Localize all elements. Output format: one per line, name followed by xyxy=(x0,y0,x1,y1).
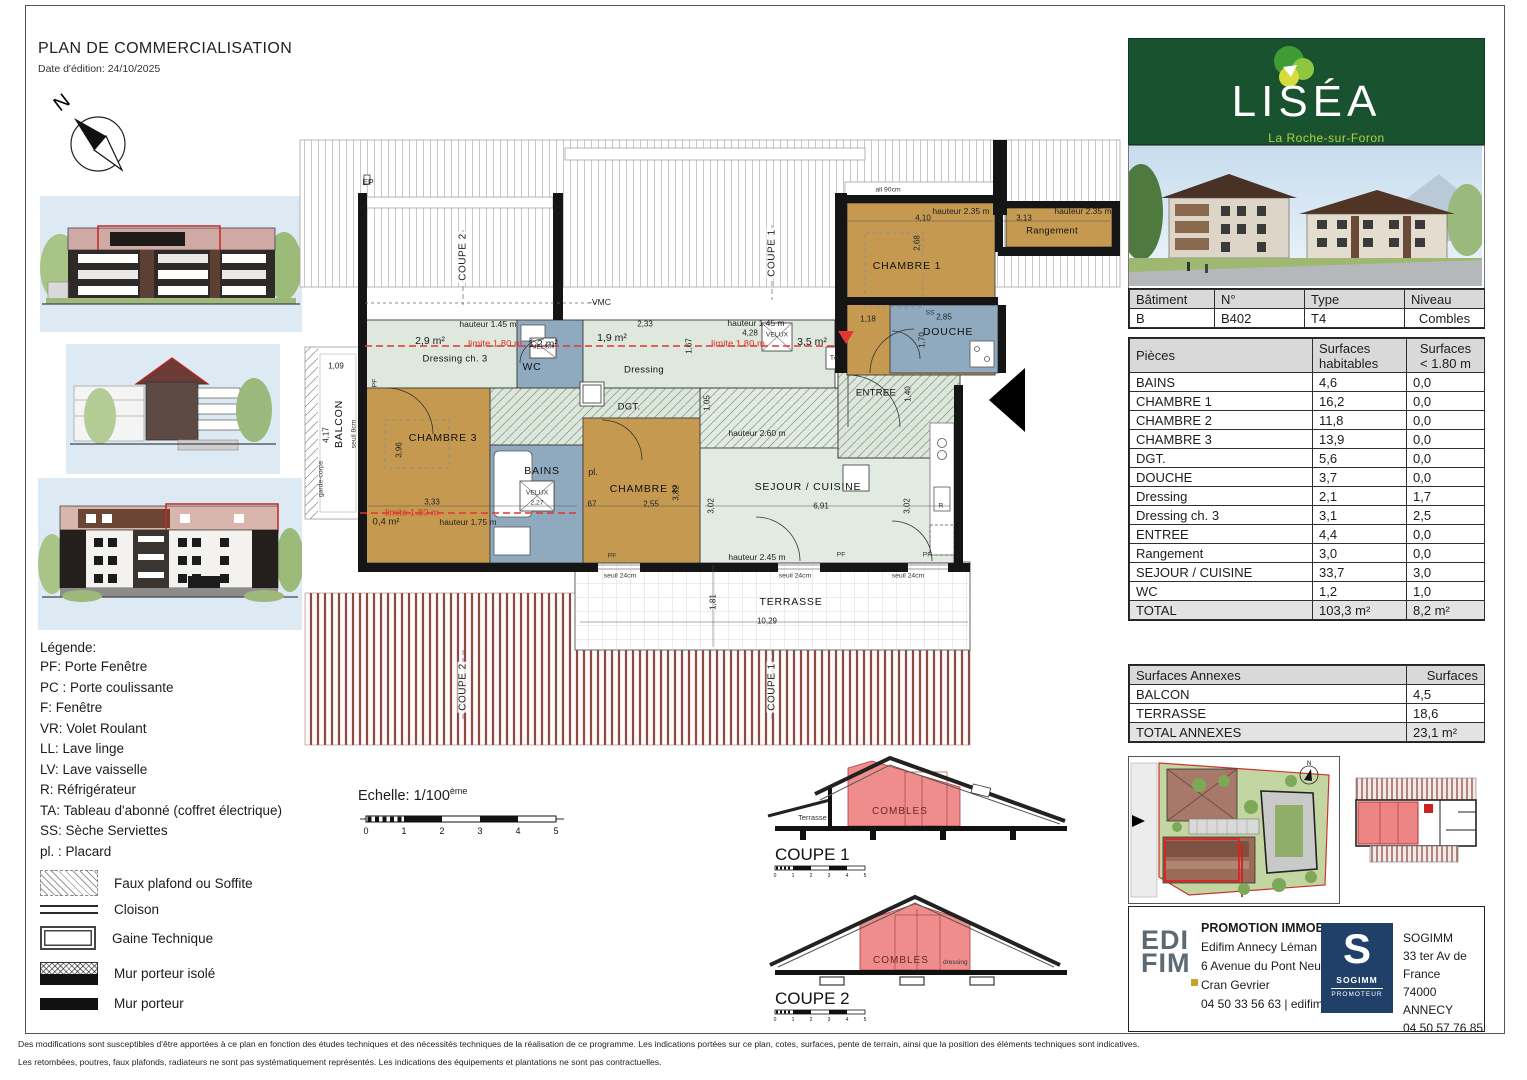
table-row: Dressing ch. 33,12,5 xyxy=(1130,506,1485,525)
room-dressing-corridor xyxy=(583,320,835,388)
annex-balcon-value: 4,5 xyxy=(1407,685,1485,704)
value-type: T4 xyxy=(1305,309,1405,328)
edifim-logo: EDI FIM xyxy=(1141,929,1191,975)
sogimm-logo: S SOGIMM PROMOTEUR xyxy=(1321,923,1393,1013)
legend-item: pl. : Placard xyxy=(40,842,340,863)
elevation-2 xyxy=(66,344,280,474)
table-header-row: Surfaces Annexes Surfaces xyxy=(1130,666,1485,685)
table-cell: 13,9 xyxy=(1313,430,1407,449)
north-letter: N xyxy=(52,90,74,116)
table-cell: BAINS xyxy=(1130,373,1313,392)
header-surfaces-basses: Surfaces< 1.80 m xyxy=(1407,339,1485,373)
table-cell: 3,0 xyxy=(1407,563,1485,582)
annex-surface-table: Surfaces Annexes Surfaces BALCON 4,5 TER… xyxy=(1128,664,1485,743)
gaine-box xyxy=(843,465,869,491)
header-surfaces: Surfaces xyxy=(1407,666,1485,685)
legend-item: LV: Lave vaisselle xyxy=(40,760,340,781)
coupe1-combles-label: COMBLES xyxy=(872,806,928,817)
mur-porteur-swatch-icon xyxy=(40,998,98,1010)
value-batiment: B xyxy=(1130,309,1215,328)
table-row: DOUCHE3,70,0 xyxy=(1130,468,1485,487)
coupe-2-section: COMBLES dressing COUPE 2 012 345 xyxy=(760,885,1090,1025)
table-cell: 0,0 xyxy=(1407,430,1485,449)
sogimm-line: 33 ter Av de France xyxy=(1403,947,1484,983)
coupe1-title: COUPE 1 xyxy=(775,845,850,864)
svg-text:2: 2 xyxy=(810,873,813,879)
total-label: TOTAL xyxy=(1130,601,1313,620)
svg-text:4: 4 xyxy=(846,1017,849,1023)
total-basse: 8,2 m² xyxy=(1407,601,1485,620)
symbol-label: Faux plafond ou Soffite xyxy=(114,876,253,891)
edifim-logo-bottom: FIM xyxy=(1141,952,1191,975)
scale-sup: ème xyxy=(450,786,468,796)
key-plan-image xyxy=(1350,772,1485,872)
room-chambre-2 xyxy=(583,418,700,563)
table-cell: 0,0 xyxy=(1407,373,1485,392)
svg-text:4: 4 xyxy=(515,826,520,836)
table-cell: CHAMBRE 1 xyxy=(1130,392,1313,411)
table-row: CHAMBRE 211,80,0 xyxy=(1130,411,1485,430)
svg-text:0: 0 xyxy=(774,1017,777,1023)
key-plan-illustration xyxy=(1350,772,1485,872)
table-row: B B402 T4 Combles xyxy=(1130,309,1485,328)
table-cell: Dressing xyxy=(1130,487,1313,506)
entrance-arrow-icon xyxy=(989,368,1025,432)
legend-symbol-mur-isole: Mur porteur isolé xyxy=(40,962,215,985)
coupe2-dressing-label: dressing xyxy=(943,959,968,966)
table-row: CHAMBRE 116,20,0 xyxy=(1130,392,1485,411)
rooms-surface-table: Pièces Surfaceshabitables Surfaces< 1.80… xyxy=(1128,337,1485,621)
brand-name: LISÉA xyxy=(1129,77,1484,127)
symbol-label: Mur porteur xyxy=(114,996,184,1011)
disclaimer-line: Les retombées, poutres, faux plafonds, r… xyxy=(18,1053,1513,1071)
table-row: BALCON 4,5 xyxy=(1130,685,1485,704)
room-rangement xyxy=(1006,208,1112,247)
header-pieces: Pièces xyxy=(1130,339,1313,373)
balcony xyxy=(305,347,361,519)
room-chambre-3 xyxy=(365,388,490,563)
total-annexes-value: 23,1 m² xyxy=(1407,723,1485,742)
legend-symbol-mur-porteur: Mur porteur xyxy=(40,996,184,1011)
table-row: TERRASSE 18,6 xyxy=(1130,704,1485,723)
coupe-1-section: Terrasse COMBLES COUPE 1 012 345 xyxy=(760,748,1090,883)
elevation-3 xyxy=(38,478,302,630)
table-cell: Rangement xyxy=(1130,544,1313,563)
svg-text:2: 2 xyxy=(810,1017,813,1023)
svg-text:0: 0 xyxy=(774,873,777,879)
table-row: SEJOUR / CUISINE33,73,0 xyxy=(1130,563,1485,582)
svg-text:3: 3 xyxy=(477,826,482,836)
table-header-row: Pièces Surfaceshabitables Surfaces< 1.80… xyxy=(1130,339,1485,373)
table-cell: 1,7 xyxy=(1407,487,1485,506)
legend-item: SS: Sèche Serviettes xyxy=(40,821,340,842)
render-illustration xyxy=(1129,146,1482,286)
symbol-label: Mur porteur isolé xyxy=(114,966,215,981)
legend-symbol-faux-plafond: Faux plafond ou Soffite xyxy=(40,870,253,896)
svg-text:3: 3 xyxy=(828,1017,831,1023)
table-cell: CHAMBRE 3 xyxy=(1130,430,1313,449)
svg-text:N: N xyxy=(1307,761,1311,767)
table-row: Rangement3,00,0 xyxy=(1130,544,1485,563)
gaine-box xyxy=(580,382,604,406)
terrace xyxy=(575,562,970,650)
table-cell: DOUCHE xyxy=(1130,468,1313,487)
table-cell: 0,0 xyxy=(1407,449,1485,468)
svg-text:2: 2 xyxy=(439,826,444,836)
sogimm-line: SOGIMM xyxy=(1403,929,1484,947)
symbol-label: Cloison xyxy=(114,902,159,917)
table-header-row: Bâtiment N° Type Niveau xyxy=(1130,290,1485,309)
annex-balcon: BALCON xyxy=(1130,685,1407,704)
table-cell: 16,2 xyxy=(1313,392,1407,411)
table-row: BAINS4,60,0 xyxy=(1130,373,1485,392)
svg-text:5: 5 xyxy=(553,826,558,836)
table-cell: SEJOUR / CUISINE xyxy=(1130,563,1313,582)
north-compass-icon: N xyxy=(52,86,137,186)
annex-terrasse-value: 18,6 xyxy=(1407,704,1485,723)
sogimm-contact: SOGIMM 33 ter Av de France 74000 ANNECY … xyxy=(1403,929,1484,1037)
brand-city: La Roche-sur-Foron xyxy=(1129,131,1524,145)
site-plan-image: N xyxy=(1128,756,1340,904)
unit-info-table: Bâtiment N° Type Niveau B B402 T4 Comble… xyxy=(1128,288,1485,329)
total-row: TOTAL 103,3 m² 8,2 m² xyxy=(1130,601,1485,620)
symbol-label: Gaine Technique xyxy=(112,931,213,946)
plan-sheet: { "header": { "title": "PLAN DE COMMERCI… xyxy=(0,0,1527,1080)
svg-text:5: 5 xyxy=(864,1017,867,1023)
legend-item: R: Réfrigérateur xyxy=(40,780,340,801)
sogimm-logo-letter: S xyxy=(1343,925,1371,973)
table-cell: 0,0 xyxy=(1407,392,1485,411)
table-cell: 2,1 xyxy=(1313,487,1407,506)
svg-text:0: 0 xyxy=(363,826,368,836)
table-cell: ENTREE xyxy=(1130,525,1313,544)
table-row: CHAMBRE 313,90,0 xyxy=(1130,430,1485,449)
lisea-logo: LISÉA La Roche-sur-Foron xyxy=(1128,38,1485,145)
gaine-swatch-icon xyxy=(40,926,96,950)
table-cell: CHAMBRE 2 xyxy=(1130,411,1313,430)
disclaimer-line: Des modifications sont susceptibles d'êt… xyxy=(18,1035,1513,1053)
cloison-swatch-icon xyxy=(40,905,98,914)
legend-symbol-gaine: Gaine Technique xyxy=(40,926,213,950)
table-cell: 1,2 xyxy=(1313,582,1407,601)
scale-bar: 01 23 45 xyxy=(358,808,568,842)
table-cell: 0,0 xyxy=(1407,411,1485,430)
table-row: DGT.5,60,0 xyxy=(1130,449,1485,468)
table-cell: 0,0 xyxy=(1407,544,1485,563)
faux-plafond-swatch-icon xyxy=(40,870,98,896)
table-cell: WC xyxy=(1130,582,1313,601)
kitchen-sink xyxy=(934,487,950,511)
table-cell: 2,5 xyxy=(1407,506,1485,525)
table-cell: 0,0 xyxy=(1407,525,1485,544)
floor-plan xyxy=(280,135,1125,750)
total-annexes-label: TOTAL ANNEXES xyxy=(1130,723,1407,742)
svg-text:3: 3 xyxy=(828,873,831,879)
bains-sink xyxy=(494,527,530,555)
table-cell: 3,7 xyxy=(1313,468,1407,487)
table-cell: 3,1 xyxy=(1313,506,1407,525)
table-cell: 33,7 xyxy=(1313,563,1407,582)
disclaimer: Des modifications sont susceptibles d'êt… xyxy=(18,1035,1513,1071)
table-row: ENTREE4,40,0 xyxy=(1130,525,1485,544)
annex-terrasse: TERRASSE xyxy=(1130,704,1407,723)
shower-tray xyxy=(970,341,994,367)
value-numero: B402 xyxy=(1215,309,1305,328)
sogimm-line: 74000 ANNECY xyxy=(1403,983,1484,1019)
edition-date: Date d'édition: 24/10/2025 xyxy=(38,63,160,75)
table-cell: 5,6 xyxy=(1313,449,1407,468)
mur-isole-swatch-icon xyxy=(40,962,98,985)
room-dressing-ch3 xyxy=(365,320,517,388)
svg-text:5: 5 xyxy=(864,873,867,879)
total-habitable: 103,3 m² xyxy=(1313,601,1407,620)
scale-label: Echelle: 1/100ème xyxy=(358,786,467,804)
svg-text:1: 1 xyxy=(792,873,795,879)
table-cell: 11,8 xyxy=(1313,411,1407,430)
table-cell: 0,0 xyxy=(1407,468,1485,487)
building-render-image xyxy=(1128,145,1485,289)
promoters-box: EDI FIM PROMOTION IMMOBILIERE Edifim Ann… xyxy=(1128,906,1485,1032)
elevation-1 xyxy=(40,196,302,332)
coupe2-title: COUPE 2 xyxy=(775,989,850,1008)
site-plan-illustration: N xyxy=(1129,757,1337,901)
table-row: Dressing2,11,7 xyxy=(1130,487,1485,506)
table-cell: 4,6 xyxy=(1313,373,1407,392)
svg-text:1: 1 xyxy=(792,1017,795,1023)
coupe1-terrasse-label: Terrasse xyxy=(798,813,827,822)
header-batiment: Bâtiment xyxy=(1130,290,1215,309)
value-niveau: Combles xyxy=(1405,309,1485,328)
coupe2-combles-label: COMBLES xyxy=(873,955,929,966)
table-row: WC1,21,0 xyxy=(1130,582,1485,601)
legend-item: TA: Tableau d'abonné (coffret électrique… xyxy=(40,801,340,822)
header-numero: N° xyxy=(1215,290,1305,309)
legend-symbol-cloison: Cloison xyxy=(40,902,159,917)
table-cell: Dressing ch. 3 xyxy=(1130,506,1313,525)
table-cell: 4,4 xyxy=(1313,525,1407,544)
table-cell: DGT. xyxy=(1130,449,1313,468)
total-row: TOTAL ANNEXES 23,1 m² xyxy=(1130,723,1485,742)
sogimm-logo-sub: PROMOTEUR xyxy=(1331,988,1382,998)
header-surfaces-habitables: Surfaceshabitables xyxy=(1313,339,1407,373)
header-annexes: Surfaces Annexes xyxy=(1130,666,1407,685)
header-niveau: Niveau xyxy=(1405,290,1485,309)
svg-text:1: 1 xyxy=(401,826,406,836)
table-cell: 3,0 xyxy=(1313,544,1407,563)
table-cell: 1,0 xyxy=(1407,582,1485,601)
sogimm-logo-name: SOGIMM xyxy=(1336,975,1377,985)
svg-text:4: 4 xyxy=(846,873,849,879)
header-type: Type xyxy=(1305,290,1405,309)
page-title: PLAN DE COMMERCIALISATION xyxy=(38,40,292,58)
edifim-gold-square-icon xyxy=(1191,979,1198,986)
